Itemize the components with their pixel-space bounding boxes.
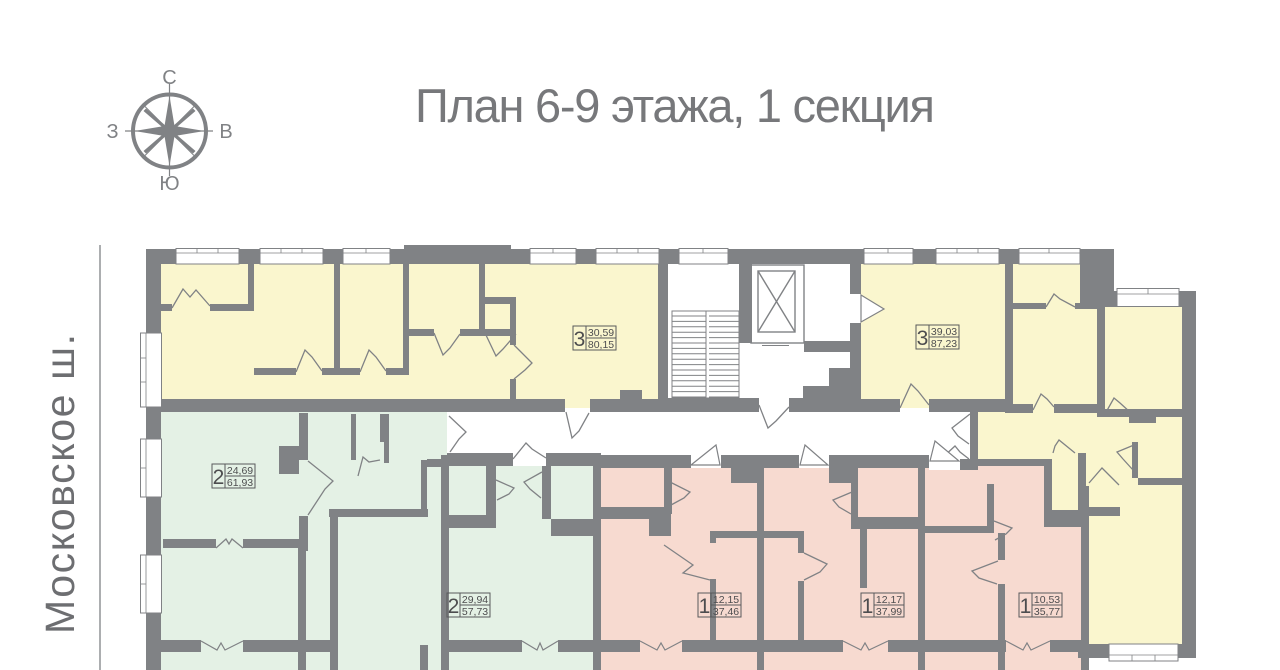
svg-text:С: С: [162, 67, 176, 89]
svg-text:12,15: 12,15: [713, 594, 739, 606]
svg-text:В: В: [219, 121, 232, 143]
svg-text:1: 1: [1020, 595, 1032, 618]
svg-text:37,46: 37,46: [713, 606, 739, 618]
svg-text:39,03: 39,03: [931, 326, 957, 338]
svg-text:3: 3: [917, 327, 929, 350]
svg-text:29,94: 29,94: [462, 594, 488, 606]
svg-text:80,15: 80,15: [588, 339, 614, 351]
svg-text:10,53: 10,53: [1034, 594, 1060, 606]
svg-text:Московское ш.: Московское ш.: [37, 334, 83, 634]
svg-text:Ю: Ю: [159, 173, 179, 195]
svg-text:План 6-9 этажа, 1 секция: План 6-9 этажа, 1 секция: [415, 79, 935, 132]
svg-text:57,73: 57,73: [462, 606, 488, 618]
svg-text:35,77: 35,77: [1034, 606, 1060, 618]
svg-text:87,23: 87,23: [931, 338, 957, 350]
svg-text:1: 1: [862, 595, 874, 618]
svg-text:1: 1: [699, 595, 711, 618]
svg-text:2: 2: [448, 595, 460, 618]
svg-text:З: З: [106, 121, 118, 143]
svg-text:3: 3: [574, 328, 586, 351]
svg-text:30,59: 30,59: [588, 327, 614, 339]
svg-text:61,93: 61,93: [227, 477, 253, 489]
svg-text:37,99: 37,99: [876, 606, 902, 618]
svg-text:2: 2: [213, 466, 225, 489]
svg-text:12,17: 12,17: [876, 594, 902, 606]
svg-text:24,69: 24,69: [227, 465, 253, 477]
